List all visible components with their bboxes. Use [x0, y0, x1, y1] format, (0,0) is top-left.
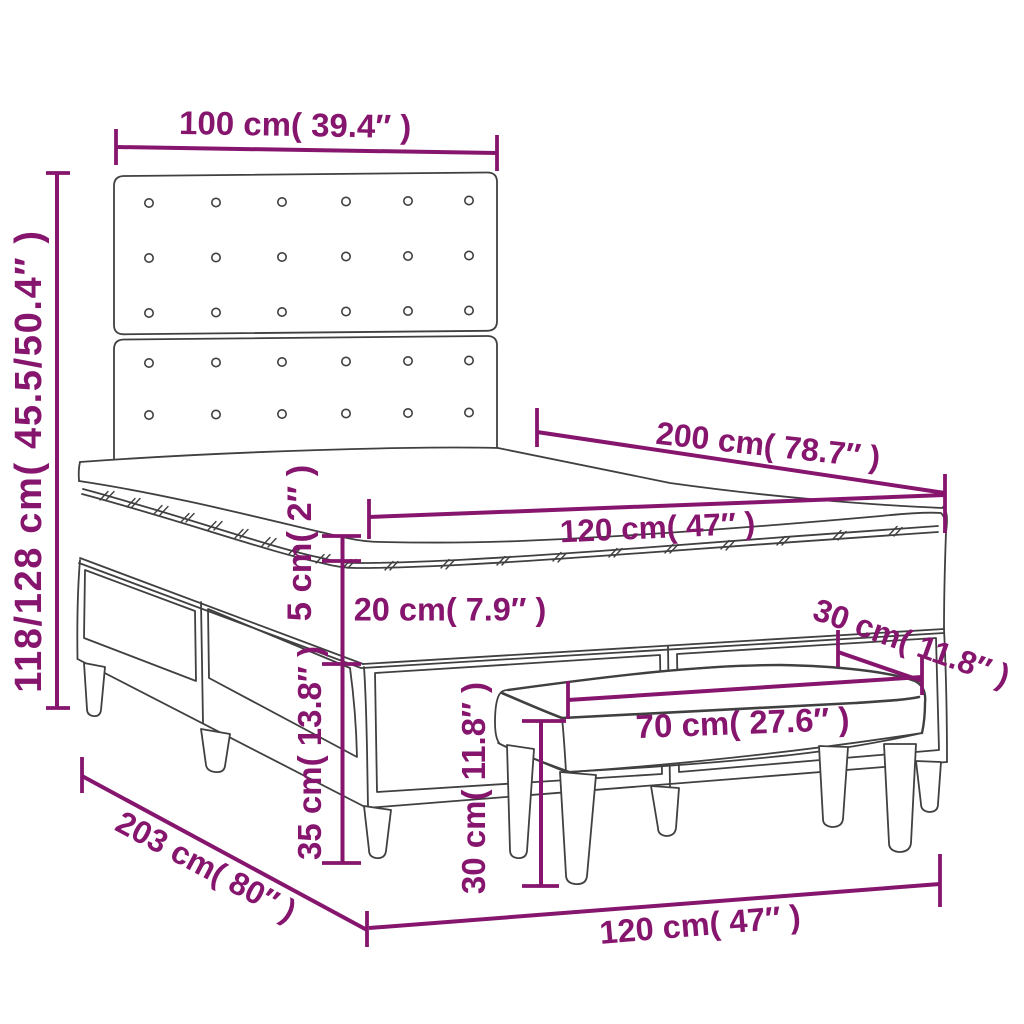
svg-text:30 cm( 11.8″ ): 30 cm( 11.8″ )	[455, 682, 492, 894]
svg-text:118/128 cm( 45.5/50.4″ ): 118/128 cm( 45.5/50.4″ )	[8, 229, 50, 692]
svg-text:35 cm( 13.8″ ): 35 cm( 13.8″ )	[291, 646, 328, 860]
svg-text:203 cm( 80″ ): 203 cm( 80″ )	[110, 804, 302, 929]
svg-text:100 cm( 39.4″ ): 100 cm( 39.4″ )	[179, 104, 412, 145]
svg-text:20 cm( 7.9″ ): 20 cm( 7.9″ )	[354, 592, 547, 628]
svg-text:5 cm( 2″ ): 5 cm( 2″ )	[281, 465, 319, 622]
